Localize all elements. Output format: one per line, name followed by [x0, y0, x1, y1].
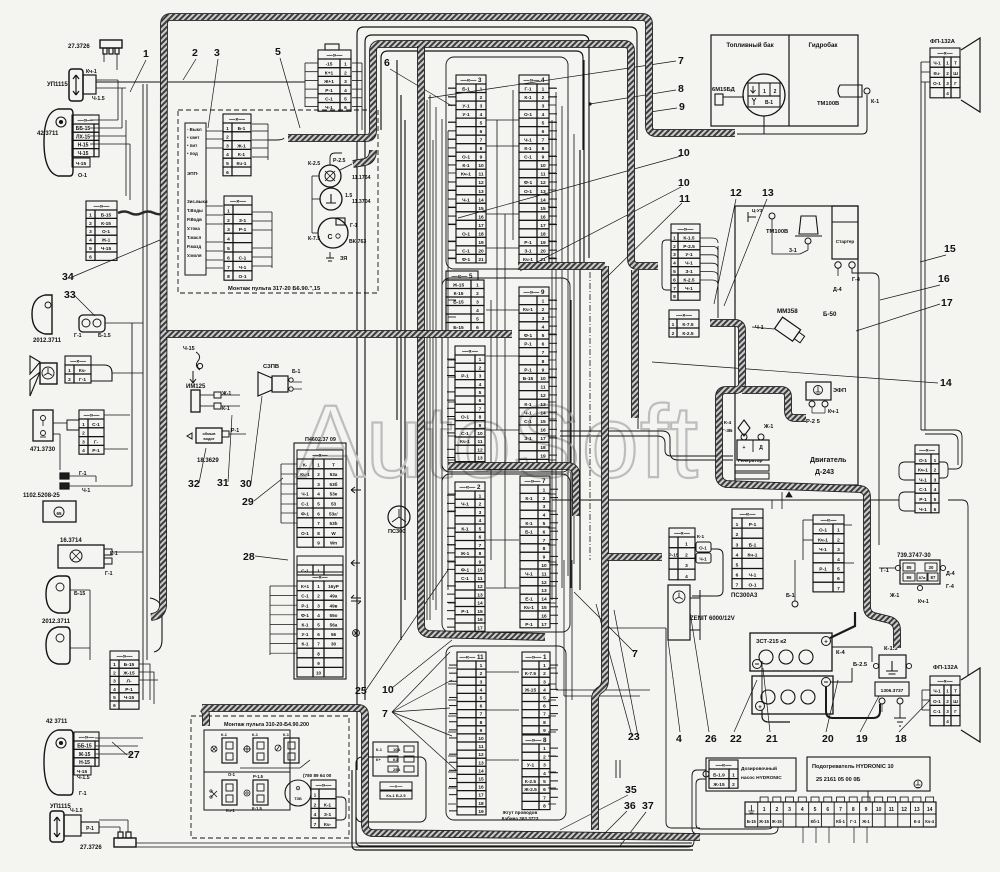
svg-text:К-1: К-1 — [221, 732, 228, 737]
svg-text:С-1: С-1 — [919, 487, 927, 493]
svg-text:8: 8 — [317, 531, 320, 536]
svg-text:Ж-1: Ж-1 — [861, 819, 870, 824]
svg-text:С-1: С-1 — [462, 248, 470, 254]
svg-text:12: 12 — [477, 584, 483, 590]
svg-text:Подогреватель HYDRONIC 10: Подогреватель HYDRONIC 10 — [812, 764, 894, 770]
svg-text:18.3629: 18.3629 — [197, 458, 219, 464]
svg-text:ПС300А3: ПС300А3 — [731, 593, 758, 599]
svg-text:4: 4 — [543, 513, 546, 519]
svg-text:Л-: Л- — [127, 679, 132, 685]
svg-text:Ч-1: Ч-1 — [749, 573, 757, 579]
svg-text:6: 6 — [479, 535, 482, 541]
svg-text:Ф-1: Ф-1 — [462, 257, 471, 263]
svg-text:Н-15: Н-15 — [79, 760, 90, 766]
svg-text:К-1: К-1 — [524, 95, 532, 101]
svg-text:10: 10 — [678, 147, 690, 159]
svg-text:Р-1: Р-1 — [325, 88, 333, 94]
svg-text:К-1: К-1 — [524, 146, 532, 152]
svg-text:К-1: К-1 — [222, 406, 230, 412]
svg-text:8: 8 — [678, 83, 684, 95]
svg-text:—«—: —«— — [937, 679, 952, 685]
svg-text:35: 35 — [625, 784, 637, 796]
svg-text:Wп: Wп — [330, 541, 337, 546]
svg-text:5: 5 — [673, 269, 676, 275]
svg-text:—»—: —»— — [229, 116, 246, 123]
svg-text:65: 65 — [56, 511, 62, 516]
svg-text:Кч-1: Кч-1 — [748, 552, 758, 558]
svg-text:1: 1 — [480, 87, 483, 93]
svg-text:П4602.37 09: П4602.37 09 — [305, 437, 336, 443]
svg-text:Кб-1: Кб-1 — [836, 819, 846, 824]
svg-text:Зис.выкл: Зис.выкл — [187, 199, 208, 204]
svg-text:1: 1 — [543, 487, 546, 493]
svg-text:5: 5 — [542, 333, 545, 339]
svg-text:Ч-1: Ч-1 — [919, 507, 927, 513]
svg-text:4: 4 — [226, 152, 229, 158]
svg-text:53h: 53h — [330, 521, 338, 526]
svg-text:11: 11 — [889, 807, 895, 813]
svg-text:Топливный бак: Топливный бак — [726, 42, 774, 49]
svg-text:Ж-15: Ж-15 — [712, 782, 725, 788]
svg-text:О-1: О-1 — [102, 229, 110, 235]
svg-text:ВК-763: ВК-763 — [349, 239, 366, 245]
svg-text:6: 6 — [317, 632, 320, 637]
svg-text:3: 3 — [317, 482, 320, 487]
svg-text:Ч-1.5: Ч-1.5 — [77, 775, 90, 781]
svg-text:2: 2 — [774, 89, 777, 95]
svg-text:7: 7 — [479, 406, 482, 412]
svg-text:6: 6 — [543, 529, 546, 535]
svg-text:К-1.5: К-1.5 — [252, 806, 262, 811]
svg-text:ПС300: ПС300 — [388, 529, 405, 535]
svg-text:Ж-15: Ж-15 — [122, 670, 135, 676]
svg-text:2: 2 — [542, 95, 545, 101]
svg-text:Кч-1: Кч-1 — [523, 257, 533, 263]
svg-text:1: 1 — [143, 48, 149, 60]
svg-text:К-1.5: К-1.5 — [683, 235, 695, 241]
svg-text:С-1: С-1 — [325, 97, 333, 103]
svg-text:ЗЯ: ЗЯ — [340, 256, 347, 262]
svg-text:3: 3 — [788, 807, 791, 813]
svg-text:21: 21 — [478, 257, 484, 263]
svg-text:8: 8 — [543, 720, 546, 726]
svg-text:9: 9 — [479, 559, 482, 565]
svg-text:З-1: З-1 — [524, 436, 532, 442]
svg-text:12: 12 — [730, 187, 742, 199]
svg-text:Б-15: Б-15 — [523, 376, 534, 382]
svg-text:Р-1: Р-1 — [461, 609, 469, 615]
svg-text:10: 10 — [678, 177, 690, 189]
svg-text:1: 1 — [543, 746, 546, 752]
svg-text:55о: 55о — [330, 613, 338, 618]
svg-text:11: 11 — [477, 439, 482, 445]
svg-text:6: 6 — [736, 573, 739, 579]
svg-text:Т.масл: Т.масл — [187, 235, 201, 240]
svg-text:13: 13 — [477, 456, 483, 462]
svg-text:49в: 49в — [330, 603, 338, 608]
svg-text:1: 1 — [732, 773, 735, 779]
svg-text:6: 6 — [226, 170, 229, 176]
svg-text:Ч-1.5: Ч-1.5 — [92, 96, 105, 102]
svg-text:11: 11 — [478, 744, 483, 750]
svg-text:3: 3 — [82, 439, 85, 445]
svg-text:13: 13 — [541, 588, 547, 594]
svg-text:16: 16 — [478, 214, 484, 220]
svg-text:ЭФП: ЭФП — [833, 388, 846, 394]
svg-text:Е-1: Е-1 — [525, 597, 533, 603]
svg-text:4: 4 — [676, 733, 682, 745]
svg-text:С-1: С-1 — [239, 255, 247, 261]
svg-text:О-1: О-1 — [524, 112, 532, 118]
svg-text:ББ-15: ББ-15 — [76, 126, 91, 132]
svg-text:10: 10 — [382, 684, 394, 696]
svg-text:8: 8 — [479, 551, 482, 557]
svg-text:К-1: К-1 — [525, 521, 533, 527]
svg-text:1: 1 — [736, 522, 739, 528]
svg-text:12: 12 — [478, 752, 484, 758]
svg-text:1: 1 — [763, 89, 766, 95]
svg-text:3: 3 — [476, 300, 479, 306]
svg-text:Б-1.9: Б-1.9 — [713, 773, 725, 779]
svg-text:11: 11 — [679, 193, 690, 205]
svg-text:10: 10 — [540, 163, 546, 169]
svg-text:3: 3 — [542, 104, 545, 110]
svg-text:Кч-1: Кч-1 — [226, 808, 235, 813]
svg-text:О-1: О-1 — [699, 546, 707, 551]
svg-text:СЗПВ: СЗПВ — [263, 364, 279, 370]
svg-text:31: 31 — [217, 477, 229, 489]
svg-text:6: 6 — [479, 398, 482, 404]
svg-text:—»—: —»— — [327, 52, 344, 59]
svg-text:19: 19 — [856, 733, 868, 745]
svg-text:К-1: К-1 — [462, 163, 470, 169]
svg-text:8: 8 — [480, 720, 483, 726]
svg-text:9: 9 — [543, 555, 546, 561]
svg-text:26: 26 — [705, 733, 717, 745]
svg-text:Кч-: Кч- — [933, 71, 940, 76]
svg-text:К+: К+ — [376, 757, 381, 762]
svg-text:У-1: У-1 — [462, 104, 470, 110]
svg-text:Г: Г — [954, 709, 957, 714]
svg-text:—«—: —«— — [312, 575, 327, 581]
svg-text:3: 3 — [479, 510, 482, 516]
svg-text:С-1: С-1 — [301, 594, 309, 599]
svg-text:9: 9 — [479, 423, 482, 429]
svg-text:—«—: —«— — [937, 51, 952, 57]
svg-text:Р-1: Р-1 — [919, 497, 927, 503]
svg-text:6: 6 — [344, 105, 347, 111]
svg-text:—»—: —»— — [678, 226, 695, 233]
svg-text:Ж-1: Ж-1 — [101, 238, 111, 244]
svg-text:К-1: К-1 — [238, 152, 246, 158]
svg-text:Кч-1: Кч-1 — [818, 537, 828, 543]
svg-text:ББ-15: ББ-15 — [77, 743, 92, 749]
svg-text:10: 10 — [478, 736, 484, 742]
svg-text:Р-1: Р-1 — [819, 567, 827, 573]
svg-text:К-1: К-1 — [376, 747, 383, 752]
svg-text:11: 11 — [541, 571, 546, 577]
svg-text:Б-2.5: Б-2.5 — [853, 662, 868, 668]
svg-text:З-1: З-1 — [239, 218, 247, 224]
svg-text:О-1: О-1 — [933, 81, 941, 86]
svg-text:Ч-15: Ч-15 — [76, 161, 87, 167]
svg-text:9: 9 — [317, 541, 320, 546]
svg-text:Ш: Ш — [953, 71, 958, 76]
svg-text:3: 3 — [946, 709, 949, 714]
svg-text:11: 11 — [478, 172, 483, 178]
svg-text:Кч-1: Кч-1 — [524, 605, 534, 611]
svg-text:4: 4 — [476, 308, 479, 314]
svg-text:Б-1: Б-1 — [749, 542, 757, 548]
svg-text:13: 13 — [478, 189, 484, 195]
svg-text:19: 19 — [540, 240, 546, 246]
svg-text:5: 5 — [736, 563, 739, 569]
svg-text:Б-15: Б-15 — [124, 662, 135, 668]
svg-text:—«—: —«— — [312, 453, 327, 459]
svg-text:Ч-1: Ч-1 — [239, 265, 247, 271]
svg-text:Кч-1: Кч-1 — [918, 599, 929, 605]
svg-text:4: 4 — [837, 557, 840, 563]
svg-text:53б: 53б — [330, 481, 338, 487]
svg-text:Р-1: Р-1 — [86, 826, 94, 832]
svg-text:12: 12 — [478, 180, 484, 186]
svg-text:7: 7 — [678, 55, 684, 67]
svg-text:1: 1 — [226, 126, 229, 132]
svg-text:4: 4 — [89, 238, 92, 244]
svg-text:18: 18 — [540, 231, 546, 237]
svg-text:8: 8 — [542, 359, 545, 365]
svg-text:3: 3 — [317, 603, 320, 608]
svg-text:З-1: З-1 — [324, 812, 332, 818]
svg-text:• пит: • пит — [187, 143, 198, 148]
svg-text:Г-1: Г-1 — [850, 819, 857, 824]
svg-text:Д-4: Д-4 — [946, 571, 955, 577]
svg-text:8: 8 — [479, 415, 482, 421]
svg-text:1: 1 — [89, 212, 92, 218]
svg-text:Т: Т — [954, 61, 957, 66]
svg-text:Ф-1: Ф-1 — [461, 568, 470, 574]
svg-text:2: 2 — [542, 307, 545, 313]
svg-text:Ч-1: Ч-1 — [685, 261, 693, 267]
svg-text:2: 2 — [317, 594, 320, 599]
svg-text:Кч-: Кч- — [324, 822, 332, 828]
svg-text:3: 3 — [214, 47, 220, 59]
svg-text:О-1: О-1 — [228, 772, 236, 777]
svg-text:Ж-15: Ж-15 — [78, 752, 91, 758]
svg-text:14: 14 — [478, 197, 484, 203]
svg-text:Б-1: Б-1 — [292, 369, 300, 375]
svg-text:5: 5 — [543, 779, 546, 785]
svg-text:9: 9 — [317, 661, 320, 666]
svg-text:1306.3737: 1306.3737 — [881, 688, 904, 694]
svg-text:К-4: К-4 — [836, 650, 845, 656]
svg-text:6: 6 — [837, 576, 840, 582]
svg-text:- Выкл: - Выкл — [187, 127, 202, 132]
svg-text:7: 7 — [632, 648, 638, 660]
svg-text:8: 8 — [673, 294, 676, 300]
svg-text:О-1: О-1 — [239, 274, 247, 280]
svg-text:2: 2 — [344, 70, 347, 76]
svg-text:—»—: —»— — [316, 782, 333, 789]
svg-text:3: 3 — [946, 81, 949, 86]
svg-text:ФП-132А: ФП-132А — [933, 665, 959, 671]
svg-text:2: 2 — [480, 95, 483, 101]
svg-text:Кч-1: Кч-1 — [237, 161, 247, 167]
svg-text:—«—: —«— — [919, 447, 936, 454]
svg-text:14: 14 — [540, 410, 546, 416]
svg-text:8: 8 — [317, 651, 320, 656]
svg-text:42.3711: 42.3711 — [37, 131, 59, 137]
svg-text:Кч-1 Б-2.5: Кч-1 Б-2.5 — [386, 793, 406, 798]
svg-text:3: 3 — [736, 542, 739, 548]
svg-text:1: 1 — [317, 584, 320, 589]
svg-text:5: 5 — [837, 567, 840, 573]
svg-text:2: 2 — [314, 802, 317, 808]
svg-text:4: 4 — [317, 492, 320, 497]
svg-text:—»—: —»— — [70, 358, 87, 365]
svg-text:Б-50: Б-50 — [823, 311, 837, 318]
svg-text:2: 2 — [837, 537, 840, 543]
svg-text:У.тока: У.тока — [187, 226, 200, 231]
svg-text:О-1: О-1 — [462, 155, 470, 161]
svg-text:16: 16 — [541, 613, 547, 619]
svg-text:К-2.5: К-2.5 — [525, 779, 537, 785]
svg-text:ТЗБ: ТЗБ — [294, 796, 302, 801]
svg-text:10: 10 — [876, 807, 882, 813]
svg-text:Ч-1: Ч-1 — [525, 571, 533, 577]
svg-text:4: 4 — [934, 487, 937, 493]
svg-text:25: 25 — [355, 685, 367, 697]
svg-text:1: 1 — [314, 793, 317, 799]
svg-text:6: 6 — [480, 704, 483, 710]
svg-text:КЗ: КЗ — [393, 757, 399, 762]
svg-text:—«—: —«— — [716, 762, 733, 769]
svg-text:• свет: • свет — [187, 135, 200, 140]
svg-text:У-1: У-1 — [302, 632, 309, 637]
svg-text:Ф-1: Ф-1 — [524, 333, 533, 339]
svg-text:28: 28 — [243, 551, 255, 563]
svg-text:К-1: К-1 — [524, 402, 532, 408]
svg-text:-15: -15 — [326, 62, 333, 68]
svg-text:Т: Т — [332, 462, 335, 467]
svg-text:Г: Г — [954, 81, 957, 86]
svg-text:К-2.5: К-2.5 — [308, 161, 320, 167]
svg-text:13: 13 — [478, 760, 484, 766]
svg-text:1: 1 — [476, 283, 479, 289]
svg-text:С-1: С-1 — [301, 502, 309, 507]
svg-text:О-1: О-1 — [933, 699, 941, 704]
svg-text:2012.3711: 2012.3711 — [33, 338, 62, 344]
svg-text:10А: 10А — [393, 747, 400, 752]
svg-text:Р-1.5: Р-1.5 — [253, 774, 264, 779]
svg-text:49а: 49а — [330, 594, 338, 599]
svg-text:7: 7 — [543, 538, 546, 544]
svg-text:7: 7 — [227, 265, 230, 271]
svg-text:Ж+1: Ж+1 — [323, 79, 334, 85]
svg-text:10: 10 — [478, 163, 484, 169]
svg-text:12: 12 — [901, 807, 907, 813]
svg-text:12: 12 — [540, 180, 546, 186]
svg-text:4: 4 — [227, 237, 230, 243]
svg-text:Р.Водв: Р.Водв — [187, 217, 202, 222]
svg-text:5: 5 — [89, 246, 92, 252]
svg-text:7: 7 — [317, 521, 320, 526]
svg-text:1102.5208-25: 1102.5208-25 — [23, 493, 60, 499]
svg-text:8: 8 — [543, 546, 546, 552]
svg-text:19: 19 — [540, 453, 546, 459]
svg-text:О-1: О-1 — [524, 189, 532, 195]
svg-text:1: 1 — [837, 528, 840, 534]
svg-text:Ч-1: Ч-1 — [933, 61, 941, 66]
svg-text:3-1: 3-1 — [789, 248, 797, 254]
svg-text:Ж-1: Ж-1 — [763, 424, 773, 430]
svg-text:1: 1 — [685, 542, 688, 548]
svg-text:ЗСТ-215 к2: ЗСТ-215 к2 — [756, 639, 786, 645]
svg-text:4: 4 — [801, 807, 804, 813]
svg-text:12: 12 — [541, 580, 547, 586]
svg-text:15: 15 — [540, 419, 546, 425]
svg-text:18: 18 — [478, 801, 484, 807]
svg-text:11: 11 — [540, 172, 545, 178]
svg-text:15: 15 — [540, 206, 546, 212]
svg-text:Ч-15: Ч-15 — [124, 695, 135, 701]
svg-text:7: 7 — [543, 795, 546, 801]
svg-text:С-1: С-1 — [92, 422, 100, 428]
svg-text:К-1: К-1 — [697, 534, 705, 540]
svg-text:14: 14 — [477, 601, 483, 607]
svg-text:14: 14 — [540, 197, 546, 203]
svg-text:5: 5 — [934, 497, 937, 503]
svg-text:3: 3 — [673, 252, 676, 258]
svg-text:4: 4 — [82, 448, 85, 454]
svg-text:1: 1 — [113, 662, 116, 668]
svg-text:2: 2 — [227, 218, 230, 224]
svg-text:+: + — [743, 445, 746, 451]
svg-text:Кч-4: Кч-4 — [925, 819, 934, 824]
svg-text:4: 4 — [543, 687, 546, 693]
svg-text:Ж-1: Ж-1 — [889, 593, 899, 599]
svg-text:Ч-1: Ч-1 — [699, 557, 707, 562]
svg-text:ИМ125: ИМ125 — [186, 384, 206, 390]
svg-text:—«— 11: —«— 11 — [459, 654, 484, 661]
svg-text:Г-1: Г-1 — [881, 568, 889, 574]
svg-text:Жгут проводов: Жгут проводов — [502, 810, 538, 815]
svg-text:37: 37 — [642, 800, 654, 812]
svg-text:К-15: К-15 — [101, 221, 111, 227]
svg-text:Кч-1: Кч-1 — [461, 172, 471, 178]
svg-text:С-1: С-1 — [461, 576, 469, 582]
svg-text:Р-1: Р-1 — [461, 374, 469, 380]
svg-text:К-15: К-15 — [454, 291, 464, 297]
svg-text:К-1: К-1 — [252, 732, 259, 737]
svg-text:4: 4 — [685, 574, 688, 580]
svg-text:6М15БД: 6М15БД — [712, 87, 736, 93]
svg-text:1: 1 — [480, 663, 483, 669]
svg-text:16: 16 — [477, 617, 483, 623]
svg-text:ЛХ-15: ЛХ-15 — [76, 134, 90, 140]
svg-text:4: 4 — [480, 112, 483, 118]
svg-text:К-: К- — [303, 462, 308, 467]
svg-text:9: 9 — [480, 728, 483, 734]
svg-text:5: 5 — [113, 695, 116, 701]
svg-text:Ф-1: Ф-1 — [301, 511, 309, 516]
svg-text:4: 4 — [673, 261, 676, 267]
svg-text:3: 3 — [934, 477, 937, 483]
svg-text:О-1: О-1 — [749, 583, 757, 589]
svg-text:3: 3 — [685, 563, 688, 569]
svg-text:1: 1 — [317, 569, 320, 574]
svg-text:Ч-1: Ч-1 — [524, 410, 532, 416]
